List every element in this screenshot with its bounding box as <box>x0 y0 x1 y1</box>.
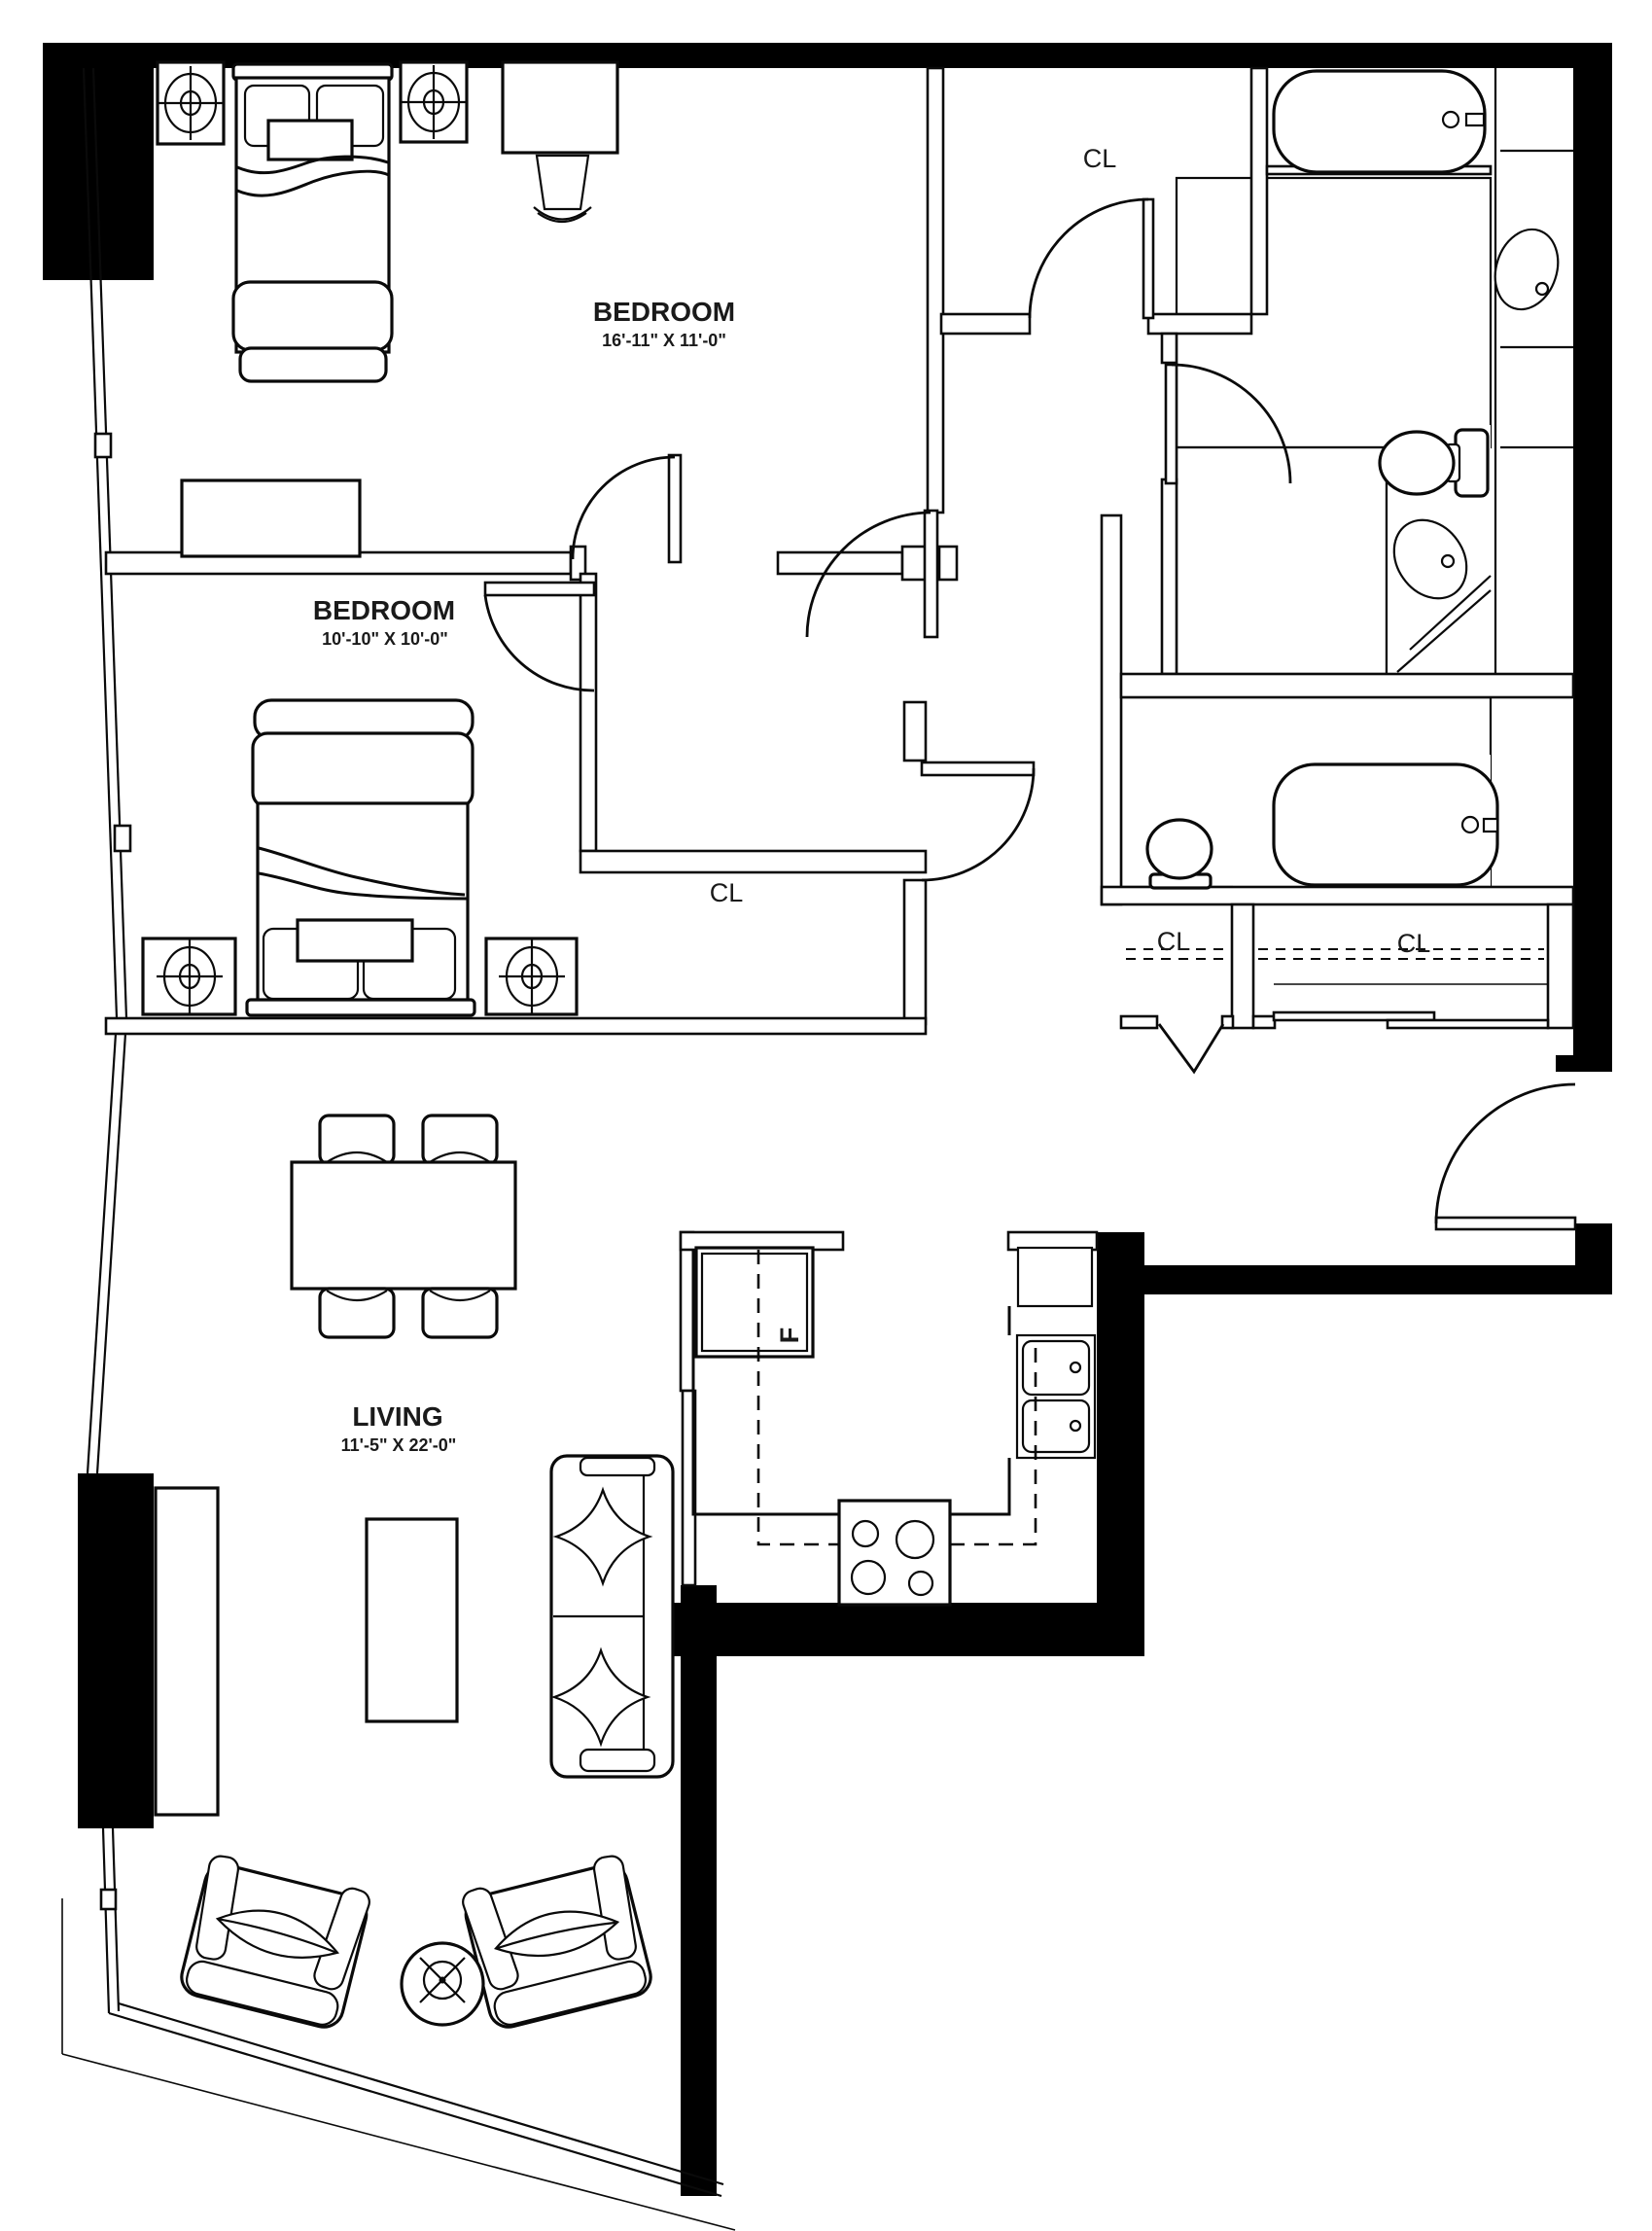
window-diagonal <box>109 2013 721 2196</box>
entry-closets-divider <box>1232 904 1253 1028</box>
dresser-icon <box>182 480 360 556</box>
bedroom1-label: BEDROOM <box>593 297 735 327</box>
mullion <box>95 434 111 457</box>
kitchen-west-wall <box>681 1232 693 1391</box>
west-column <box>78 1473 154 1828</box>
bedroom2-door <box>485 583 594 691</box>
desk-chair-icon <box>537 156 588 209</box>
mullion <box>115 826 130 851</box>
closet-jamb <box>1222 1016 1233 1028</box>
entry-jamb <box>1556 1055 1612 1072</box>
sofa-icon <box>551 1456 673 1777</box>
bedroom1-dims: 16'-11" X 11'-0" <box>602 331 726 350</box>
closet-middle-label: CL <box>710 878 744 907</box>
bed-icon <box>233 64 392 381</box>
coffee-table-icon <box>367 1519 457 1721</box>
bedroom1-east-wall <box>928 68 943 513</box>
bathroom-1 <box>1274 68 1573 674</box>
entry-closet-east-jamb <box>1548 904 1573 1028</box>
armchair-icon <box>459 1852 655 2031</box>
closet-entry-large-label: CL <box>1397 929 1431 958</box>
living-label: LIVING <box>352 1401 442 1432</box>
bathroom2-south-wall <box>1102 887 1573 904</box>
dining-chair-icon <box>320 1289 394 1337</box>
balcony-edge-line <box>62 2054 735 2230</box>
bathroom-2 <box>1147 764 1497 888</box>
bathroom1-west-wall-lower <box>1162 479 1177 674</box>
floor-plan-svg: F <box>0 0 1652 2231</box>
tub-handle <box>1466 114 1484 125</box>
closet-bifold-door <box>1159 1024 1223 1072</box>
toilet-icon <box>1147 820 1212 888</box>
closet-top-south-wall-right <box>1148 314 1251 334</box>
bathroom1-tile-floor <box>1177 178 1491 674</box>
closet-jamb <box>1253 1016 1275 1028</box>
closet-entry-small-label: CL <box>1157 927 1191 956</box>
bathtub-icon <box>1274 71 1485 172</box>
entry-door <box>1436 1084 1575 1229</box>
bathtub-icon <box>1274 764 1497 885</box>
closet-top-south-wall-left <box>941 314 1030 334</box>
desk-icon <box>503 62 617 222</box>
sink-icon <box>1486 221 1568 317</box>
bedroom2-south-wall <box>106 1018 926 1034</box>
bedroom2-label: BEDROOM <box>313 595 455 625</box>
dining-table-icon <box>292 1162 515 1289</box>
tub-handle <box>1484 819 1497 832</box>
right-wall <box>1573 68 1612 1055</box>
bed-icon <box>247 700 475 1015</box>
fridge-label: F <box>775 1328 804 1344</box>
door-jamb <box>902 547 926 580</box>
side-table-icon <box>402 1943 483 2025</box>
living-dims: 11'-5" X 22'-0" <box>341 1435 457 1455</box>
dishwasher-icon <box>1018 1248 1092 1306</box>
door-jamb <box>939 547 957 580</box>
bedroom2-east-wall <box>580 574 596 851</box>
tv-console-icon <box>156 1488 218 1815</box>
doors <box>485 199 1575 1229</box>
dining-chair-icon <box>423 1289 497 1337</box>
kitchen-east-wall <box>1097 1232 1144 1656</box>
kitchen: F <box>681 1232 1097 1605</box>
closet-bath1-divider <box>1251 68 1267 314</box>
bathrooms-divider-wall <box>1121 674 1573 697</box>
closet-top-door <box>1030 199 1153 318</box>
bedroom-1-furniture <box>158 62 617 556</box>
bedroom-2-furniture <box>143 700 577 1015</box>
stove-icon <box>839 1501 950 1605</box>
bathroom1-west-wall-upper <box>1162 334 1177 363</box>
dining-set <box>292 1115 515 1337</box>
closet-sliding-door <box>1274 1012 1548 1028</box>
foyer-south-wall <box>1128 1265 1612 1294</box>
dining-chair-icon <box>320 1115 394 1164</box>
hall-south-wall <box>778 552 902 574</box>
closet-mid-east-wall-upper <box>904 702 926 761</box>
closet-mid-north-wall <box>580 851 926 872</box>
armchair-icon <box>177 1852 373 2031</box>
top-left-column <box>43 68 154 280</box>
dining-chair-icon <box>423 1115 497 1164</box>
mullion <box>101 1890 116 1909</box>
closet-jamb <box>1121 1016 1157 1028</box>
kitchen-south-wall <box>674 1603 1144 1656</box>
living-room-furniture <box>156 1115 673 2032</box>
bathroom1-door <box>1166 365 1290 483</box>
bathroom2-west-wall <box>1102 515 1121 904</box>
double-sink-icon <box>1017 1335 1095 1458</box>
living-east-wall <box>681 1585 717 2196</box>
bedroom2-dims: 10'-10" X 10'-0" <box>322 629 448 649</box>
bedroom1-door <box>573 455 681 562</box>
closet-top-label: CL <box>1083 144 1117 173</box>
closet-mid-east-wall-lower <box>904 880 926 1024</box>
toilet-icon <box>1380 430 1488 496</box>
bathroom2-door <box>922 762 1034 880</box>
